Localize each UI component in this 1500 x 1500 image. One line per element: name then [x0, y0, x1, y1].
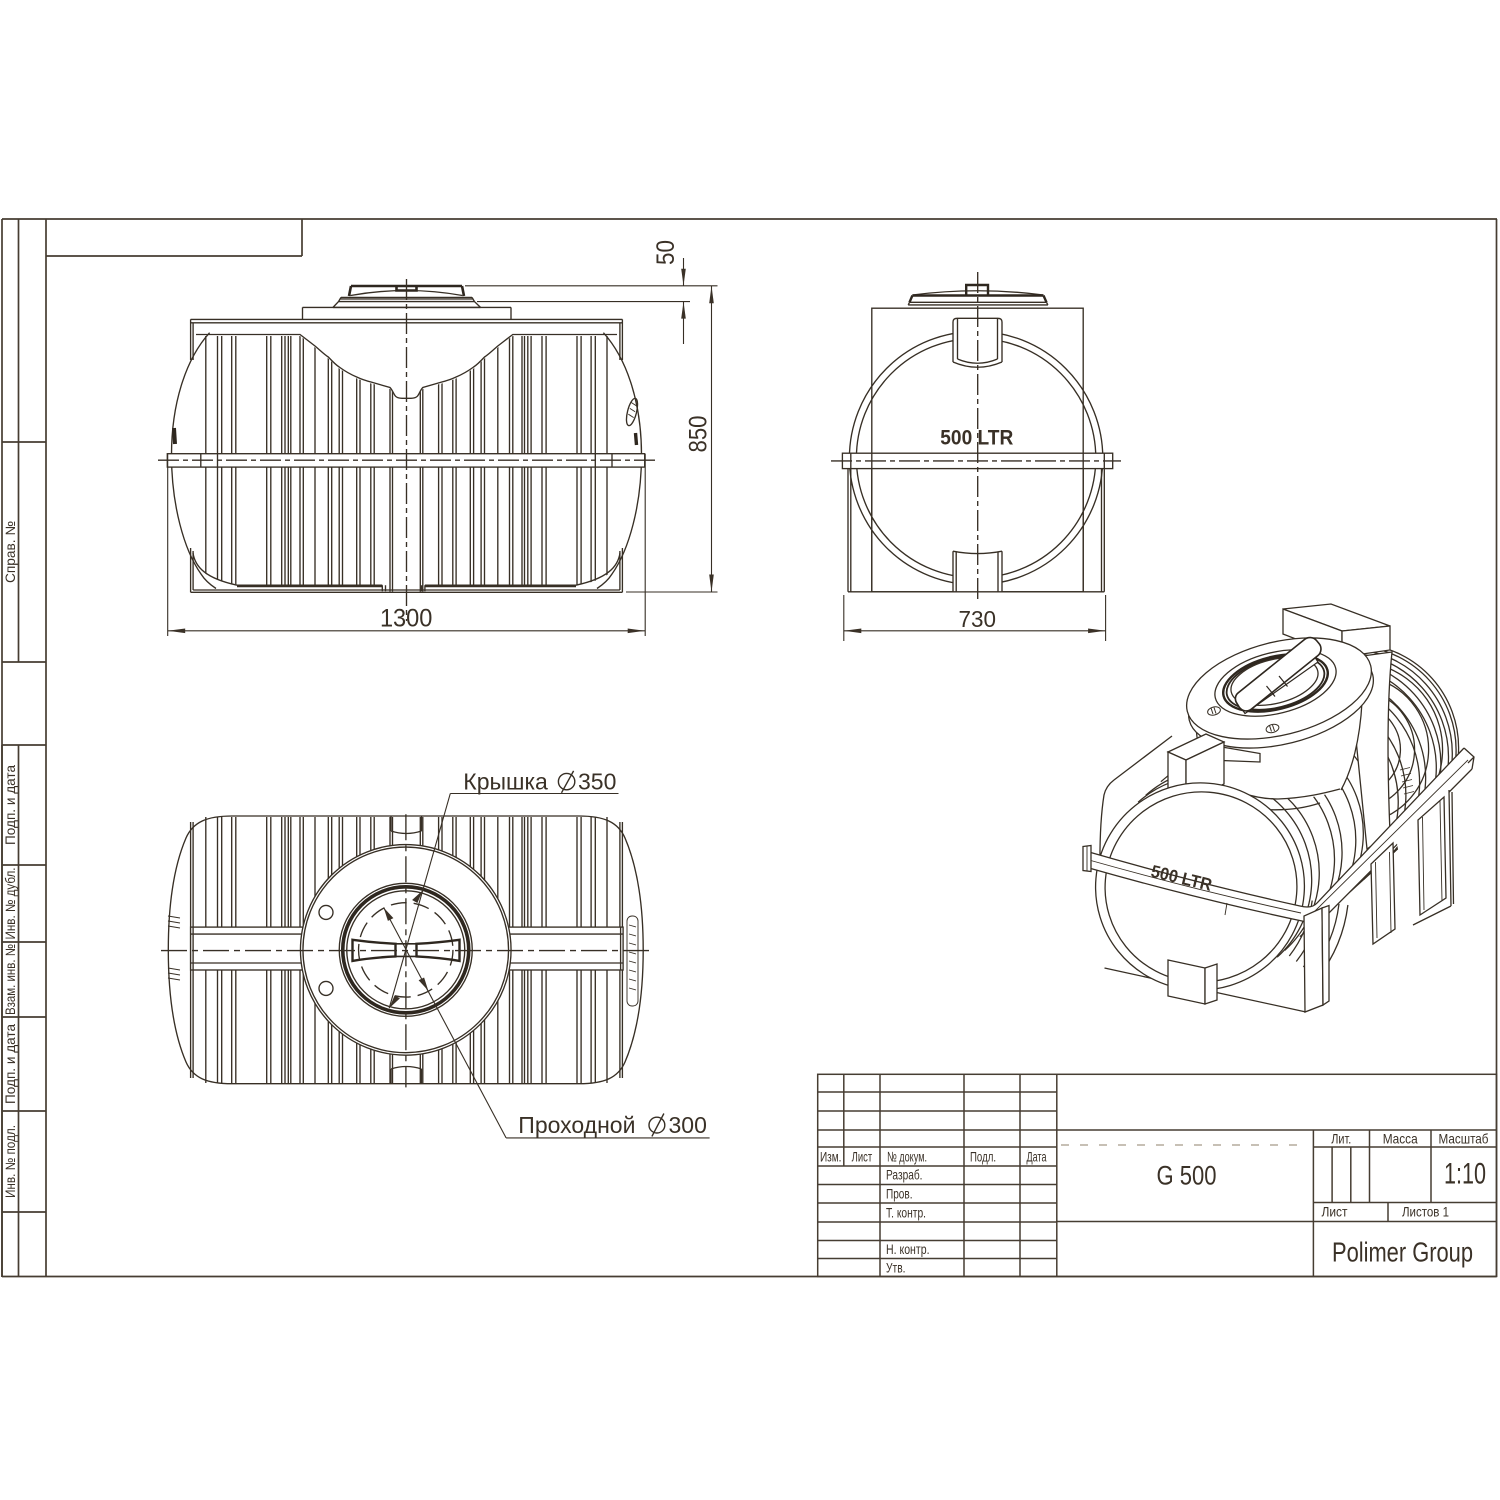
- svg-text:Лист: Лист: [1322, 1204, 1349, 1220]
- svg-text:730: 730: [959, 606, 997, 632]
- svg-text:Разраб.: Разраб.: [886, 1167, 923, 1183]
- svg-text:Т. контр.: Т. контр.: [886, 1205, 926, 1221]
- svg-text:300: 300: [669, 1112, 707, 1138]
- svg-text:1:10: 1:10: [1444, 1158, 1486, 1191]
- svg-text:Polimer Group: Polimer Group: [1332, 1237, 1473, 1268]
- svg-text:Взам. инв. №: Взам. инв. №: [3, 944, 18, 1015]
- svg-text:Утв.: Утв.: [886, 1260, 906, 1276]
- svg-text:Листов 1: Листов 1: [1402, 1204, 1449, 1220]
- svg-text:350: 350: [578, 769, 616, 795]
- svg-text:Пров.: Пров.: [886, 1186, 913, 1202]
- svg-text:Инв. № дубл.: Инв. № дубл.: [3, 868, 18, 940]
- svg-text:1300: 1300: [380, 605, 433, 633]
- svg-text:Проходной: Проходной: [518, 1112, 635, 1138]
- svg-text:Крышка: Крышка: [463, 769, 548, 795]
- svg-text:Изм.: Изм.: [820, 1149, 842, 1165]
- svg-text:Подп. и дата: Подп. и дата: [3, 765, 18, 845]
- svg-text:Подп. и дата: Подп. и дата: [3, 1024, 18, 1104]
- svg-text:Инв. № подл.: Инв. № подл.: [3, 1125, 18, 1198]
- svg-text:500 LTR: 500 LTR: [940, 427, 1013, 450]
- svg-text:50: 50: [652, 240, 680, 265]
- svg-text:Масштаб: Масштаб: [1439, 1131, 1489, 1147]
- svg-text:Подл.: Подл.: [970, 1149, 996, 1165]
- svg-text:G 500: G 500: [1157, 1161, 1217, 1191]
- svg-text:Дата: Дата: [1027, 1149, 1047, 1165]
- svg-text:Н. контр.: Н. контр.: [886, 1241, 930, 1257]
- svg-text:850: 850: [685, 416, 713, 453]
- svg-text:Масса: Масса: [1383, 1131, 1418, 1147]
- svg-text:Лит.: Лит.: [1331, 1131, 1351, 1147]
- svg-text:Лист: Лист: [852, 1149, 873, 1165]
- svg-text:№ докум.: № докум.: [887, 1149, 927, 1165]
- svg-text:Справ. №: Справ. №: [3, 521, 18, 583]
